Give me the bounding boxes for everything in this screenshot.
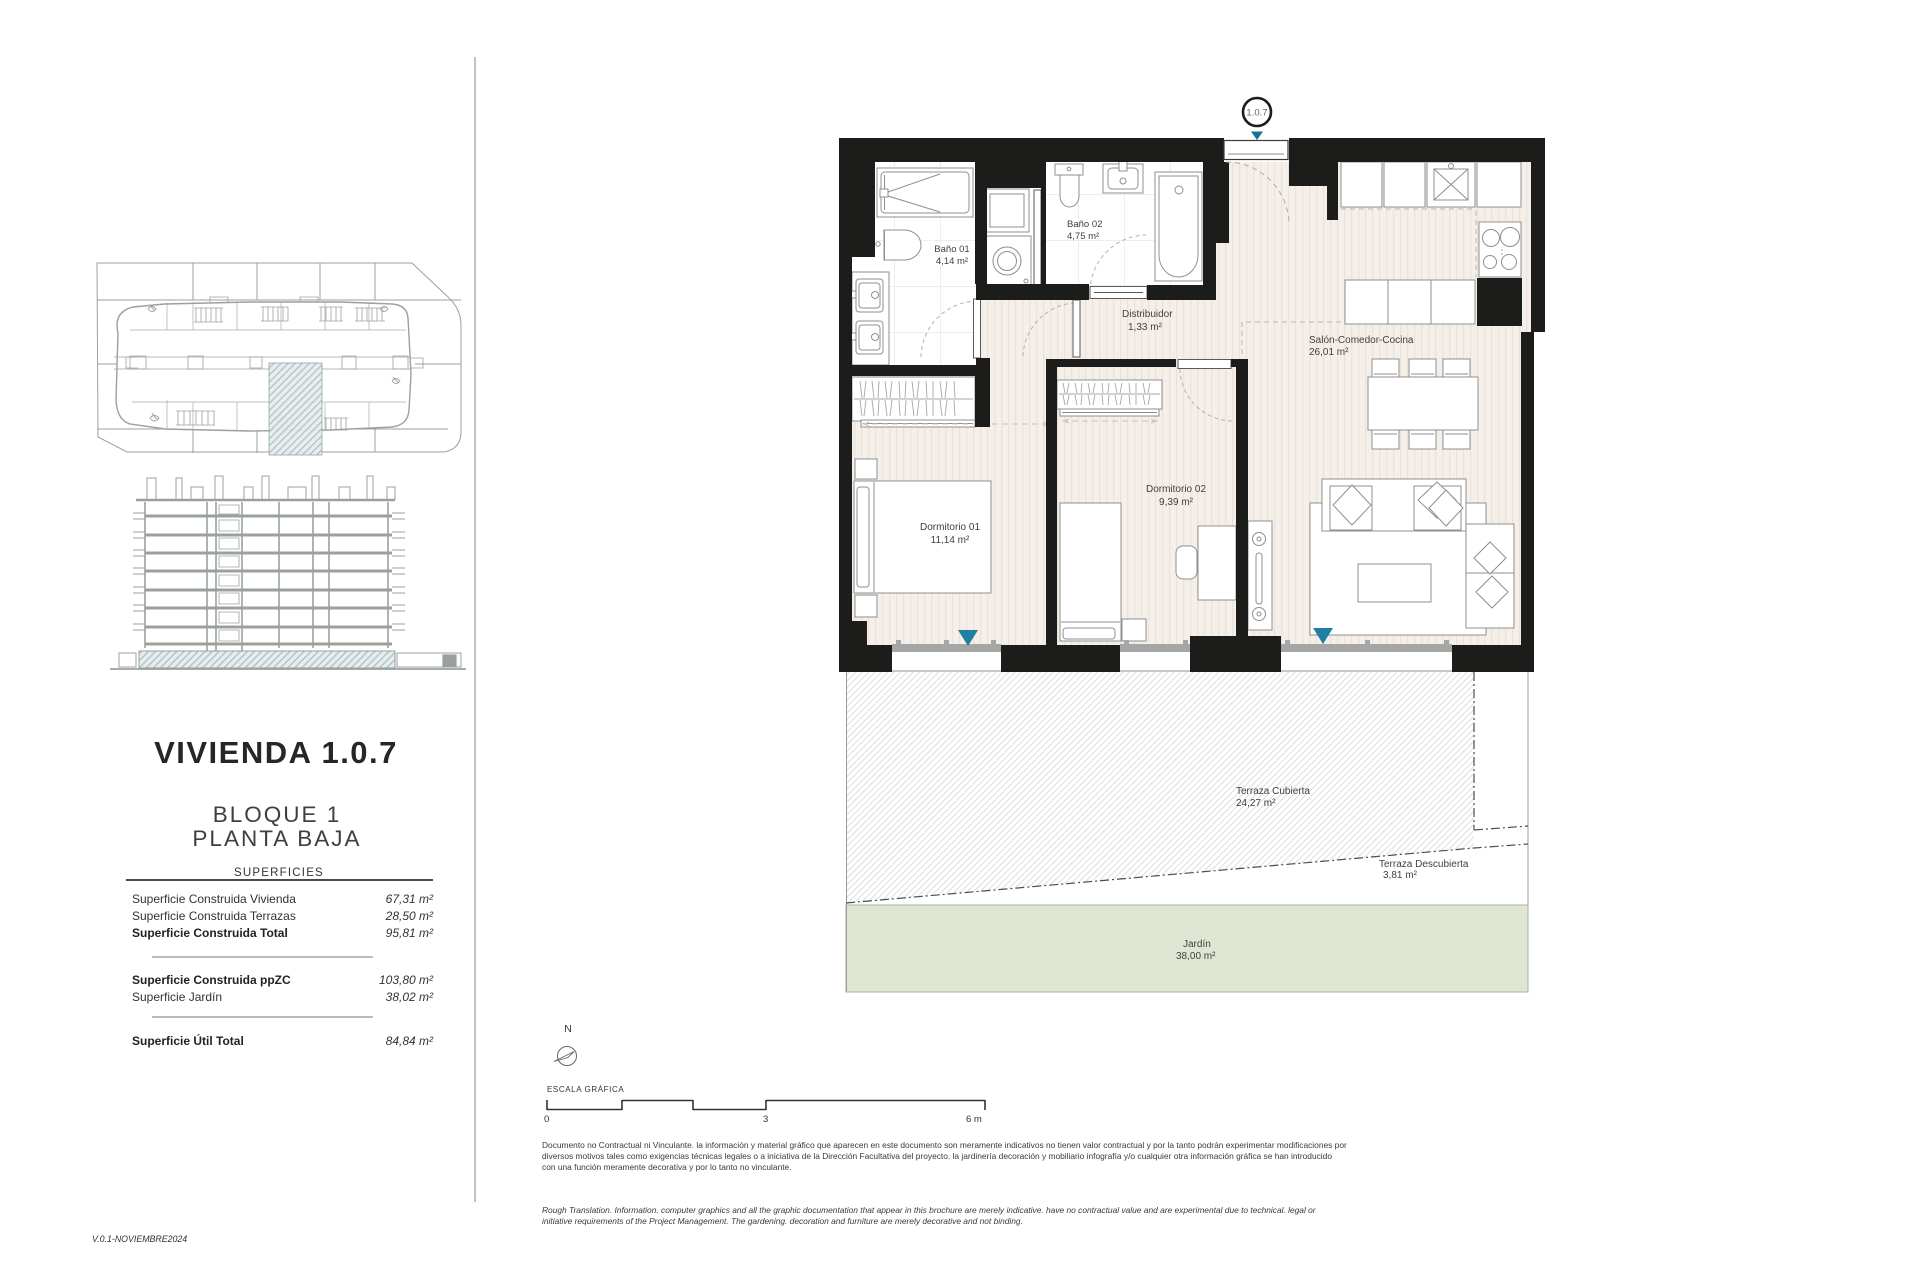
svg-text:24,27 m²: 24,27 m² bbox=[1236, 798, 1276, 809]
svg-text:38,00 m²: 38,00 m² bbox=[1176, 951, 1216, 962]
svg-text:SUPERFICIES: SUPERFICIES bbox=[234, 867, 324, 879]
svg-text:Superficie Útil Total: Superficie Útil Total bbox=[132, 1033, 244, 1048]
svg-text:28,50 m²: 28,50 m² bbox=[385, 909, 434, 923]
svg-text:11,14 m²: 11,14 m² bbox=[931, 535, 970, 546]
svg-text:diversos motivos tales como e: diversos motivos tales como exigencias t… bbox=[542, 1151, 1332, 1161]
svg-text:BLOQUE 1: BLOQUE 1 bbox=[213, 802, 342, 827]
svg-text:Superficie Jardín: Superficie Jardín bbox=[132, 990, 222, 1004]
svg-text:9,39 m²: 9,39 m² bbox=[1159, 497, 1194, 508]
svg-text:4,75 m²: 4,75 m² bbox=[1067, 231, 1099, 242]
svg-text:VIVIENDA 1.0.7: VIVIENDA 1.0.7 bbox=[154, 735, 398, 770]
svg-text:Baño 01: Baño 01 bbox=[934, 244, 969, 255]
svg-text:0: 0 bbox=[544, 1114, 549, 1125]
svg-text:Dormitorio 02: Dormitorio 02 bbox=[1146, 484, 1206, 495]
svg-text:4,14 m²: 4,14 m² bbox=[936, 256, 968, 267]
svg-text:Superficie Construida Total: Superficie Construida Total bbox=[132, 926, 288, 940]
svg-text:Rough Translation. Information: Rough Translation. Information. computer… bbox=[542, 1205, 1317, 1215]
svg-text:ESCALA GRÁFICA: ESCALA GRÁFICA bbox=[547, 1085, 624, 1094]
svg-text:N: N bbox=[564, 1023, 572, 1035]
svg-text:PLANTA BAJA: PLANTA BAJA bbox=[192, 826, 361, 851]
svg-text:Dormitorio 01: Dormitorio 01 bbox=[920, 522, 980, 533]
svg-text:84,84 m²: 84,84 m² bbox=[386, 1034, 434, 1048]
svg-text:V.0.1-NOVIEMBRE2024: V.0.1-NOVIEMBRE2024 bbox=[92, 1234, 187, 1244]
svg-text:3: 3 bbox=[763, 1114, 768, 1125]
svg-text:95,81 m²: 95,81 m² bbox=[386, 926, 434, 940]
svg-text:Superficie Construida Terrazas: Superficie Construida Terrazas bbox=[132, 909, 296, 923]
svg-text:6 m: 6 m bbox=[966, 1114, 982, 1125]
svg-text:Superficie Construida ppZC: Superficie Construida ppZC bbox=[132, 973, 291, 987]
svg-text:38,02 m²: 38,02 m² bbox=[386, 990, 434, 1004]
svg-text:1.0.7: 1.0.7 bbox=[1246, 108, 1267, 119]
svg-text:3,81 m²: 3,81 m² bbox=[1383, 870, 1418, 881]
svg-text:Salón-Comedor-Cocina: Salón-Comedor-Cocina bbox=[1309, 335, 1414, 346]
svg-text:Superficie Construida Vivienda: Superficie Construida Vivienda bbox=[132, 892, 296, 906]
svg-text:67,31 m²: 67,31 m² bbox=[386, 892, 434, 906]
svg-text:con una función meramente deco: con una función meramente decorativa y p… bbox=[542, 1162, 792, 1172]
svg-text:103,80 m²: 103,80 m² bbox=[379, 973, 434, 987]
svg-text:initiative requirements of the: initiative requirements of the Project M… bbox=[542, 1216, 1023, 1226]
svg-text:Documento no Contractual ni Vi: Documento no Contractual ni Vinculante. … bbox=[542, 1140, 1347, 1150]
svg-text:Terraza Cubierta: Terraza Cubierta bbox=[1236, 786, 1310, 797]
svg-text:Jardín: Jardín bbox=[1183, 939, 1211, 950]
svg-text:Baño 02: Baño 02 bbox=[1067, 219, 1102, 230]
svg-text:1,33 m²: 1,33 m² bbox=[1128, 322, 1163, 333]
svg-text:26,01 m²: 26,01 m² bbox=[1309, 347, 1349, 358]
svg-text:Terraza Descubierta: Terraza Descubierta bbox=[1379, 859, 1469, 870]
svg-text:Distribuidor: Distribuidor bbox=[1122, 309, 1173, 320]
